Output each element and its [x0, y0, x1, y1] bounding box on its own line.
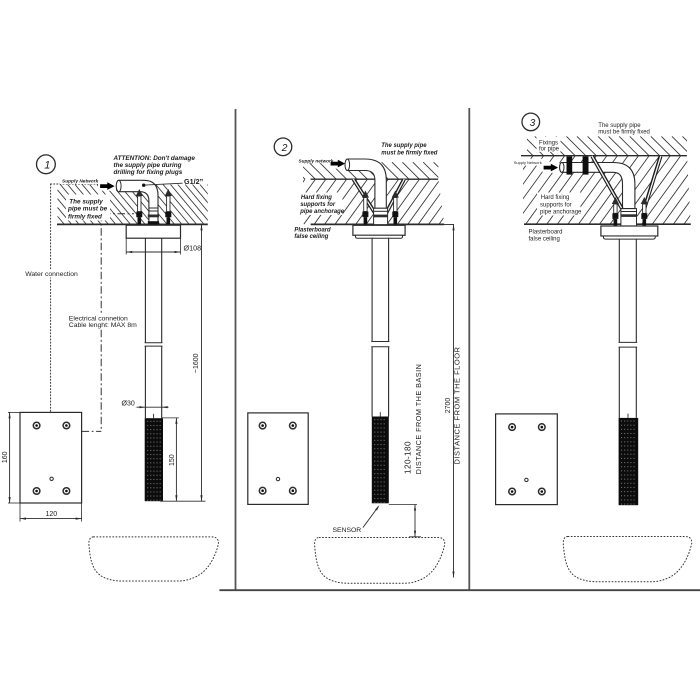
svg-text:Cable lenght: MAX 8m: Cable lenght: MAX 8m: [69, 322, 137, 329]
svg-text:firmly fixed: firmly fixed: [68, 213, 102, 220]
svg-text:The supply pipe: The supply pipe: [598, 123, 641, 129]
svg-text:supports for: supports for: [300, 202, 336, 208]
svg-text:drilling for fixing plugs: drilling for fixing plugs: [114, 169, 183, 176]
svg-text:~1600: ~1600: [193, 353, 200, 373]
svg-text:150: 150: [169, 454, 176, 466]
svg-text:must be firmly fixed: must be firmly fixed: [381, 151, 437, 157]
svg-text:Supply network: Supply network: [299, 158, 334, 163]
svg-text:Plasterboard: Plasterboard: [529, 230, 563, 236]
svg-text:Hard fixing: Hard fixing: [541, 195, 570, 201]
svg-text:pipe must be: pipe must be: [67, 206, 108, 213]
svg-text:Ø108: Ø108: [184, 243, 202, 252]
svg-text:The supply: The supply: [69, 199, 103, 206]
svg-text:2700: 2700: [445, 398, 452, 414]
svg-text:120: 120: [45, 511, 57, 518]
svg-text:3: 3: [530, 118, 536, 129]
svg-text:for pipe: for pipe: [539, 147, 560, 153]
svg-text:Plasterboard: Plasterboard: [294, 227, 331, 233]
svg-text:false ceiling: false ceiling: [529, 236, 560, 242]
svg-text:1: 1: [44, 160, 50, 172]
svg-text:G1/2”: G1/2”: [184, 177, 204, 186]
svg-text:Water connection: Water connection: [25, 271, 78, 278]
svg-text:Ø30: Ø30: [122, 401, 135, 408]
svg-text:160: 160: [2, 451, 9, 463]
svg-text:Fixings: Fixings: [539, 140, 558, 146]
svg-text:SENSOR: SENSOR: [333, 527, 362, 534]
svg-text:Supply Network: Supply Network: [62, 179, 99, 185]
svg-text:Supply Network: Supply Network: [514, 160, 542, 165]
svg-text:DISTANCE FROM THE BASIN: DISTANCE FROM THE BASIN: [414, 364, 423, 475]
svg-text:must be firmly fixed: must be firmly fixed: [598, 130, 650, 136]
svg-text:2: 2: [281, 143, 288, 154]
svg-text:supports for: supports for: [540, 202, 572, 208]
svg-text:pipe anchorage: pipe anchorage: [540, 210, 582, 216]
svg-text:pipe anchorage: pipe anchorage: [299, 209, 345, 215]
svg-text:DISTANCE FROM THE FLOOR: DISTANCE FROM THE FLOOR: [453, 346, 462, 464]
svg-text:false ceiling: false ceiling: [294, 234, 328, 240]
svg-text:120-180: 120-180: [404, 441, 413, 474]
svg-text:The supply pipe: The supply pipe: [381, 143, 427, 149]
svg-text:Hard fixing: Hard fixing: [301, 195, 332, 201]
